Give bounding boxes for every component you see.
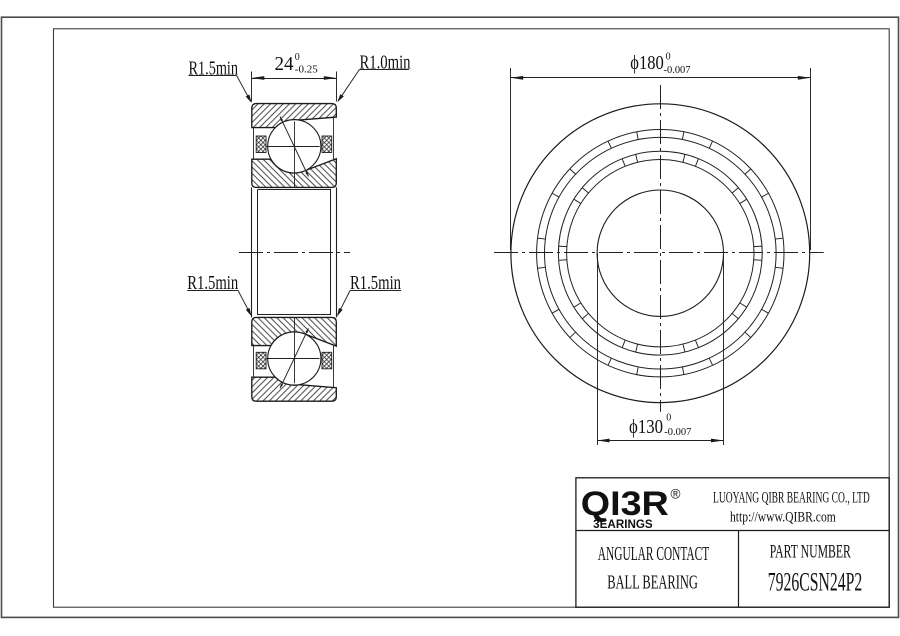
svg-text:®: ®	[671, 487, 681, 502]
svg-text:24: 24	[275, 53, 294, 75]
svg-text:3EARINGS: 3EARINGS	[593, 519, 653, 531]
svg-text:ϕ180: ϕ180	[630, 52, 664, 74]
svg-text:QI3R: QI3R	[581, 485, 669, 523]
svg-text:ANGULAR CONTACT: ANGULAR CONTACT	[598, 543, 709, 565]
svg-text:R1.0min: R1.0min	[360, 52, 411, 74]
svg-text:-0.007: -0.007	[664, 65, 691, 76]
svg-text:LUOYANG QIBR BEARING CO., LTD: LUOYANG QIBR BEARING CO., LTD	[713, 489, 870, 506]
svg-text:7926CSN24P2: 7926CSN24P2	[768, 567, 862, 596]
svg-text:PART NUMBER: PART NUMBER	[770, 542, 851, 563]
svg-text:0: 0	[295, 52, 300, 63]
svg-text:-0.007: -0.007	[664, 427, 691, 438]
svg-text:0: 0	[666, 413, 671, 424]
svg-text:R1.5min: R1.5min	[189, 58, 239, 80]
svg-text:-0.25: -0.25	[295, 65, 318, 76]
svg-text:ϕ130: ϕ130	[629, 416, 663, 438]
svg-text:BALL BEARING: BALL BEARING	[607, 571, 698, 593]
svg-text:http://www.QIBR.com: http://www.QIBR.com	[730, 510, 836, 526]
svg-text:0: 0	[666, 52, 671, 63]
